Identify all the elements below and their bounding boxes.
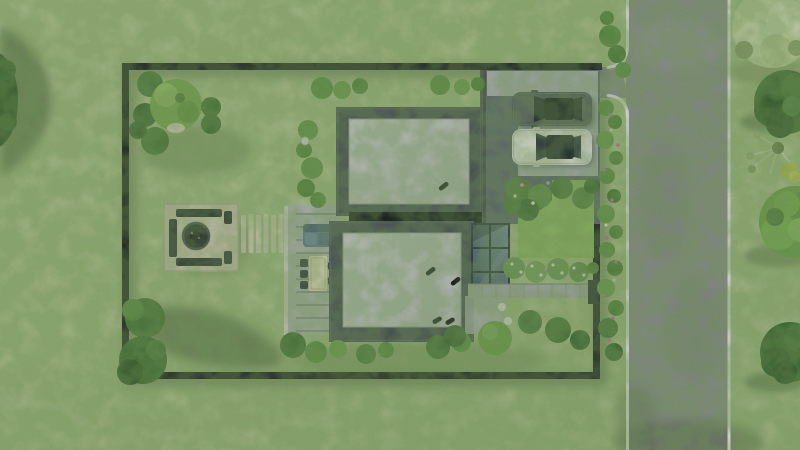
fine-grain-overlay	[0, 0, 800, 450]
aerial-site-render	[0, 0, 800, 450]
site-plan-canvas	[0, 0, 800, 450]
